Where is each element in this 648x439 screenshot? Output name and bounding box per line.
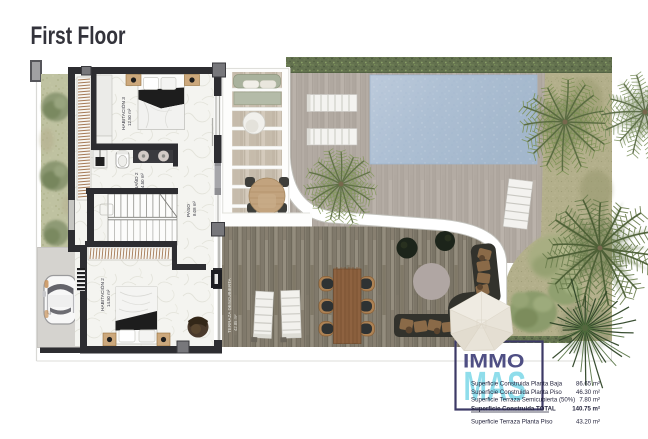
svg-text:BAÑO 2: BAÑO 2: [133, 172, 140, 190]
svg-text:7.80 m²: 7.80 m²: [579, 397, 600, 404]
svg-text:Superficie Terraza Semicubiert: Superficie Terraza Semicubierta (50%): [471, 397, 575, 404]
svg-text:14.50 m²: 14.50 m²: [106, 289, 111, 307]
svg-text:Superficie Terraza Planta Piso: Superficie Terraza Planta Piso: [471, 419, 553, 426]
svg-text:43.20 m²: 43.20 m²: [576, 419, 600, 426]
svg-text:140.75 m²: 140.75 m²: [572, 406, 600, 413]
svg-text:42.85 m²: 42.85 m²: [233, 314, 238, 331]
svg-text:HABITACIÓN 2: HABITACIÓN 2: [99, 278, 106, 311]
svg-text:Superficie Construida Planta P: Superficie Construida Planta Piso: [471, 389, 562, 396]
svg-text:12.50 m²: 12.50 m²: [127, 108, 132, 126]
svg-text:Superficie Construida Planta B: Superficie Construida Planta Baja: [471, 381, 563, 388]
svg-text:8.08 m²: 8.08 m²: [192, 201, 197, 216]
svg-text:Superficie Construida TOTAL: Superficie Construida TOTAL: [471, 406, 556, 413]
svg-text:4.50 m²: 4.50 m²: [140, 173, 145, 188]
svg-text:First Floor: First Floor: [31, 22, 126, 50]
svg-text:HABITACIÓN 3: HABITACIÓN 3: [120, 97, 127, 130]
svg-text:46.30 m²: 46.30 m²: [576, 389, 600, 396]
svg-text:86.65 m²: 86.65 m²: [576, 381, 600, 388]
svg-text:TERRAZA DESCUBIERTA: TERRAZA DESCUBIERTA: [227, 277, 232, 333]
